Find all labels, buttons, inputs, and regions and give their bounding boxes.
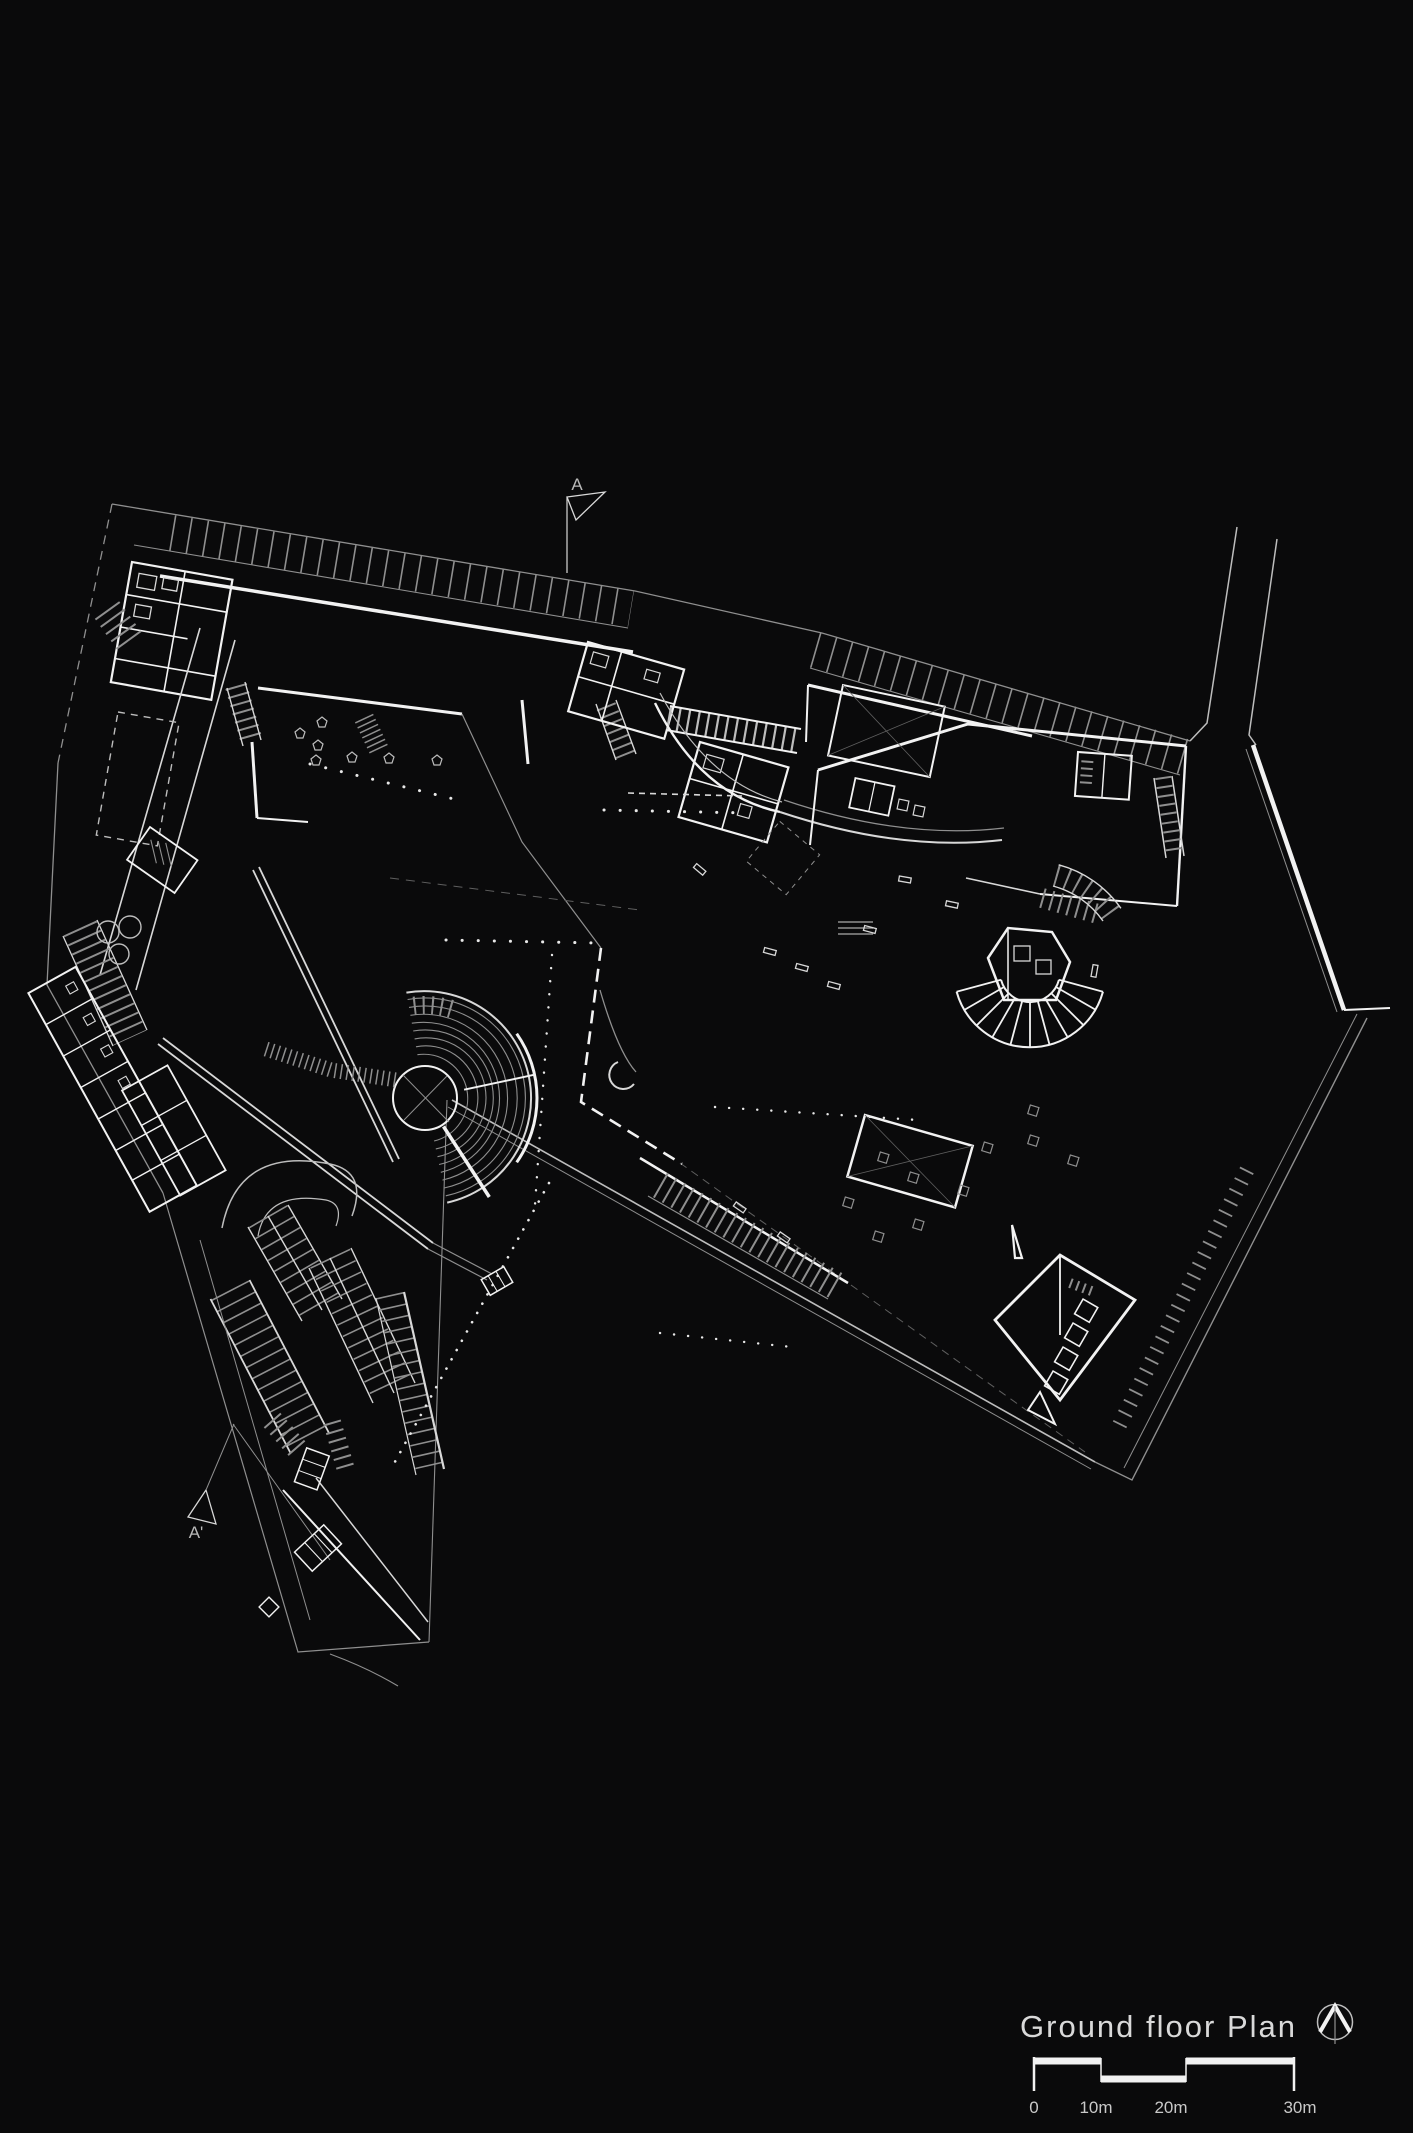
section-marker-a-prime: A' xyxy=(188,1424,234,1542)
scale-label-0: 0 xyxy=(1029,2098,1038,2117)
east-exhibition-hall xyxy=(581,685,1235,1299)
north-wing xyxy=(107,562,1032,760)
west-service-wing xyxy=(28,628,235,1212)
pool xyxy=(847,1115,972,1207)
scale-label-30m: 30m xyxy=(1283,2098,1316,2117)
south-wing-tail xyxy=(200,1240,428,1640)
amphitheater xyxy=(266,991,540,1202)
exhibit-crates xyxy=(843,1105,1079,1242)
legend: Ground floor Plan 0 10m 20m 30m xyxy=(1020,2005,1352,2118)
scale-label-10m: 10m xyxy=(1079,2098,1112,2117)
scale-bar: 0 10m 20m 30m xyxy=(1029,2057,1316,2117)
northeast-gallery xyxy=(810,724,1186,914)
plan-title: Ground floor Plan xyxy=(1020,2009,1297,2044)
furniture xyxy=(693,864,1098,1243)
section-marker-a: A xyxy=(567,475,605,573)
section-label-a-prime: A' xyxy=(189,1523,204,1542)
skylight-grid xyxy=(935,855,1235,1125)
central-gallery-cluster xyxy=(227,642,1004,1162)
section-label-a: A xyxy=(571,475,583,494)
site-boundary xyxy=(47,504,1390,1686)
column-dots xyxy=(596,876,1110,1034)
north-parking-row xyxy=(134,533,1185,775)
southeast-rooms xyxy=(995,1225,1135,1424)
scale-label-20m: 20m xyxy=(1154,2098,1187,2117)
promenade-columns xyxy=(310,764,918,1347)
east-perimeter-wall xyxy=(1246,745,1344,1012)
ground-floor-plan-drawing: A A' Ground floor Plan 0 10m 20m 30m xyxy=(0,0,1413,2133)
parking-lot xyxy=(211,1161,550,1475)
northeast-road xyxy=(1190,527,1277,745)
north-arrow-icon xyxy=(1318,2005,1353,2045)
upper-hall xyxy=(828,685,945,777)
background xyxy=(0,0,1413,2133)
fan-staircase xyxy=(957,865,1121,1048)
